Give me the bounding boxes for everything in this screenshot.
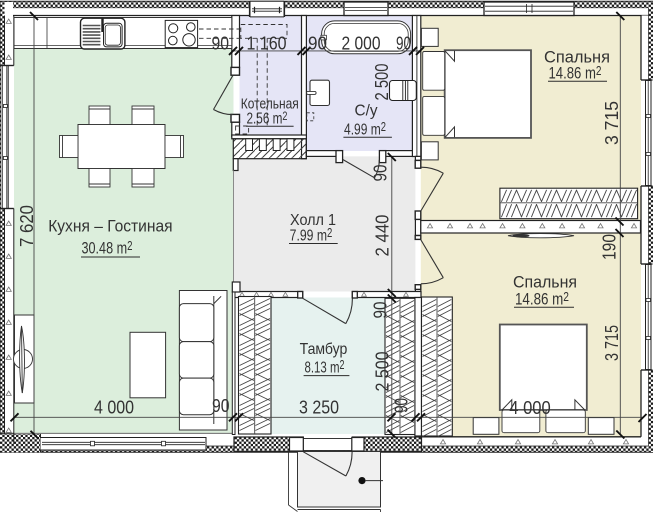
svg-text:3 250: 3 250 xyxy=(299,398,339,418)
svg-text:8.13 m2: 8.13 m2 xyxy=(305,358,345,377)
svg-text:7 620: 7 620 xyxy=(17,205,37,247)
svg-text:3 715: 3 715 xyxy=(602,325,622,361)
svg-text:4 000: 4 000 xyxy=(94,398,134,418)
svg-text:С/у: С/у xyxy=(355,103,378,120)
svg-text:90: 90 xyxy=(212,34,230,54)
svg-text:90: 90 xyxy=(392,398,412,413)
svg-text:14.86 m2: 14.86 m2 xyxy=(515,289,569,309)
svg-text:190: 190 xyxy=(600,234,620,260)
svg-text:4 000: 4 000 xyxy=(509,398,551,418)
svg-text:2 440: 2 440 xyxy=(373,215,393,257)
svg-text:Тамбур: Тамбур xyxy=(300,341,348,358)
svg-text:2 500: 2 500 xyxy=(373,352,393,392)
svg-text:90: 90 xyxy=(308,34,327,54)
svg-text:Кухня – Гостиная: Кухня – Гостиная xyxy=(48,217,172,236)
svg-text:90: 90 xyxy=(371,165,391,182)
svg-text:3 715: 3 715 xyxy=(602,101,622,145)
svg-text:30.48 m2: 30.48 m2 xyxy=(82,238,133,258)
svg-text:7.99 m2: 7.99 m2 xyxy=(290,226,333,245)
svg-text:4.99 m2: 4.99 m2 xyxy=(344,120,386,139)
svg-text:90: 90 xyxy=(212,396,230,416)
svg-text:2.56 m2: 2.56 m2 xyxy=(247,109,288,128)
svg-text:1 160: 1 160 xyxy=(247,34,287,54)
svg-text:2 000: 2 000 xyxy=(342,34,381,54)
svg-text:90: 90 xyxy=(396,34,411,54)
svg-text:2 500: 2 500 xyxy=(372,64,392,101)
svg-text:14.86 m2: 14.86 m2 xyxy=(549,63,602,83)
svg-text:90: 90 xyxy=(371,302,391,319)
